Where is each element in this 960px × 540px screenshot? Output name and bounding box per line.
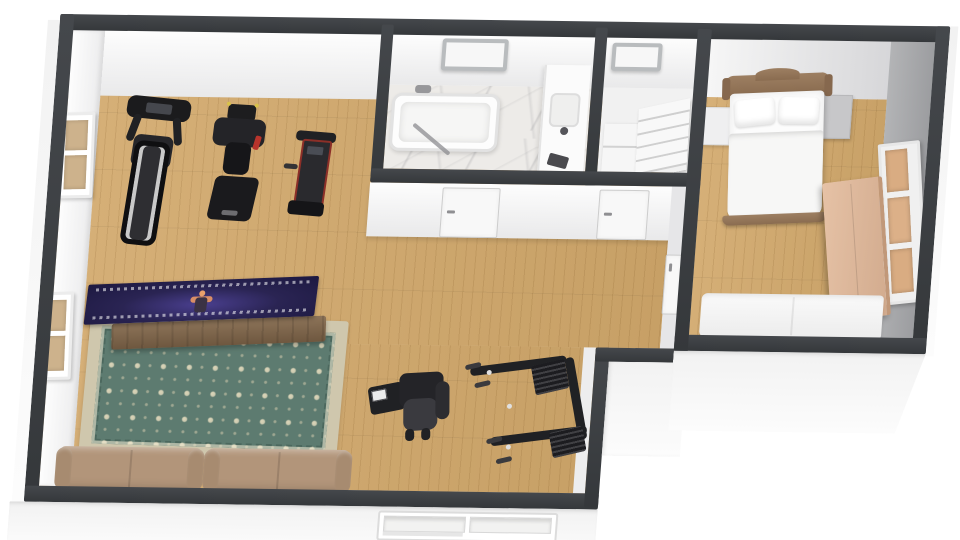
weight-stack-top [531,359,570,396]
crossover-knob [505,444,511,450]
treadmill-arm-right [173,117,182,146]
machine-seat-pad [403,398,437,432]
door-handle [447,210,455,213]
double-bed [722,72,830,228]
exterior-face-bedroom-south [668,351,926,434]
crossover-handle [496,456,513,465]
treadmill-deck [119,140,171,247]
door-handle [604,213,612,216]
bed-headboard-crown [755,67,799,81]
window-ledge [383,532,463,537]
bed-duvet [727,130,823,219]
machine-seat [222,142,252,176]
trainer-handle [283,163,298,169]
vanity-counter [537,65,591,172]
machine-base [206,175,260,221]
machine-grip-dot [255,103,259,107]
trainer-base [287,200,325,217]
bathtub-faucet [415,85,432,93]
sink-faucet [560,127,569,135]
treadmill-screen [145,102,172,115]
bed-pillow-right [778,97,820,125]
window-pane [890,248,914,294]
machine-display [371,388,387,402]
machine-foot [421,428,430,440]
bathroom-skylight [441,38,509,71]
tv-performer-figure [189,290,214,315]
trainer-ramp [293,139,333,209]
window-pane [63,155,86,189]
bathtub [389,93,501,152]
stair-room-door [596,190,650,241]
sofa-seam [128,450,133,488]
crossover-handle [474,380,491,389]
stair-steps [635,98,691,180]
figure-torso [194,297,208,312]
window-pane [383,516,466,533]
machine-side-pads [435,381,449,420]
crossover-knob [507,403,513,409]
trainer-screen [307,146,324,155]
sofa-arm [54,447,73,489]
door-handle [669,264,673,272]
bathtub-basin [398,102,491,143]
bath-accessory [546,153,569,170]
bedroom-daybed-sofa [699,293,884,339]
bathroom-door [439,187,501,238]
machine-label [221,210,238,216]
window-pane [885,148,909,192]
crossover-knob [486,369,492,375]
floor-plan-viewport [0,0,960,540]
window-pane [887,196,911,244]
loveseat-sofa-left [57,446,202,492]
daybed-seam [790,297,795,335]
bed-pillow-left [734,97,775,128]
cable-crossover-machine [467,330,596,474]
sofa-seam [276,452,281,490]
bottom-exterior-window [376,510,558,540]
sink [548,93,581,127]
seated-exercise-machine [369,365,454,447]
window-pane [65,120,88,150]
loveseat-sofa-right [205,448,350,494]
stair-landing-step-edge [603,146,639,149]
floor-plan-scene [0,0,960,540]
bed-post [824,74,833,96]
stair-skylight [611,43,663,72]
sofa-arm [334,451,353,493]
machine-foot [405,429,414,441]
window-pane [469,517,552,534]
sofa-arm [202,449,221,491]
tv-media-unit [85,271,331,356]
wall-face-gym-north [68,30,381,99]
